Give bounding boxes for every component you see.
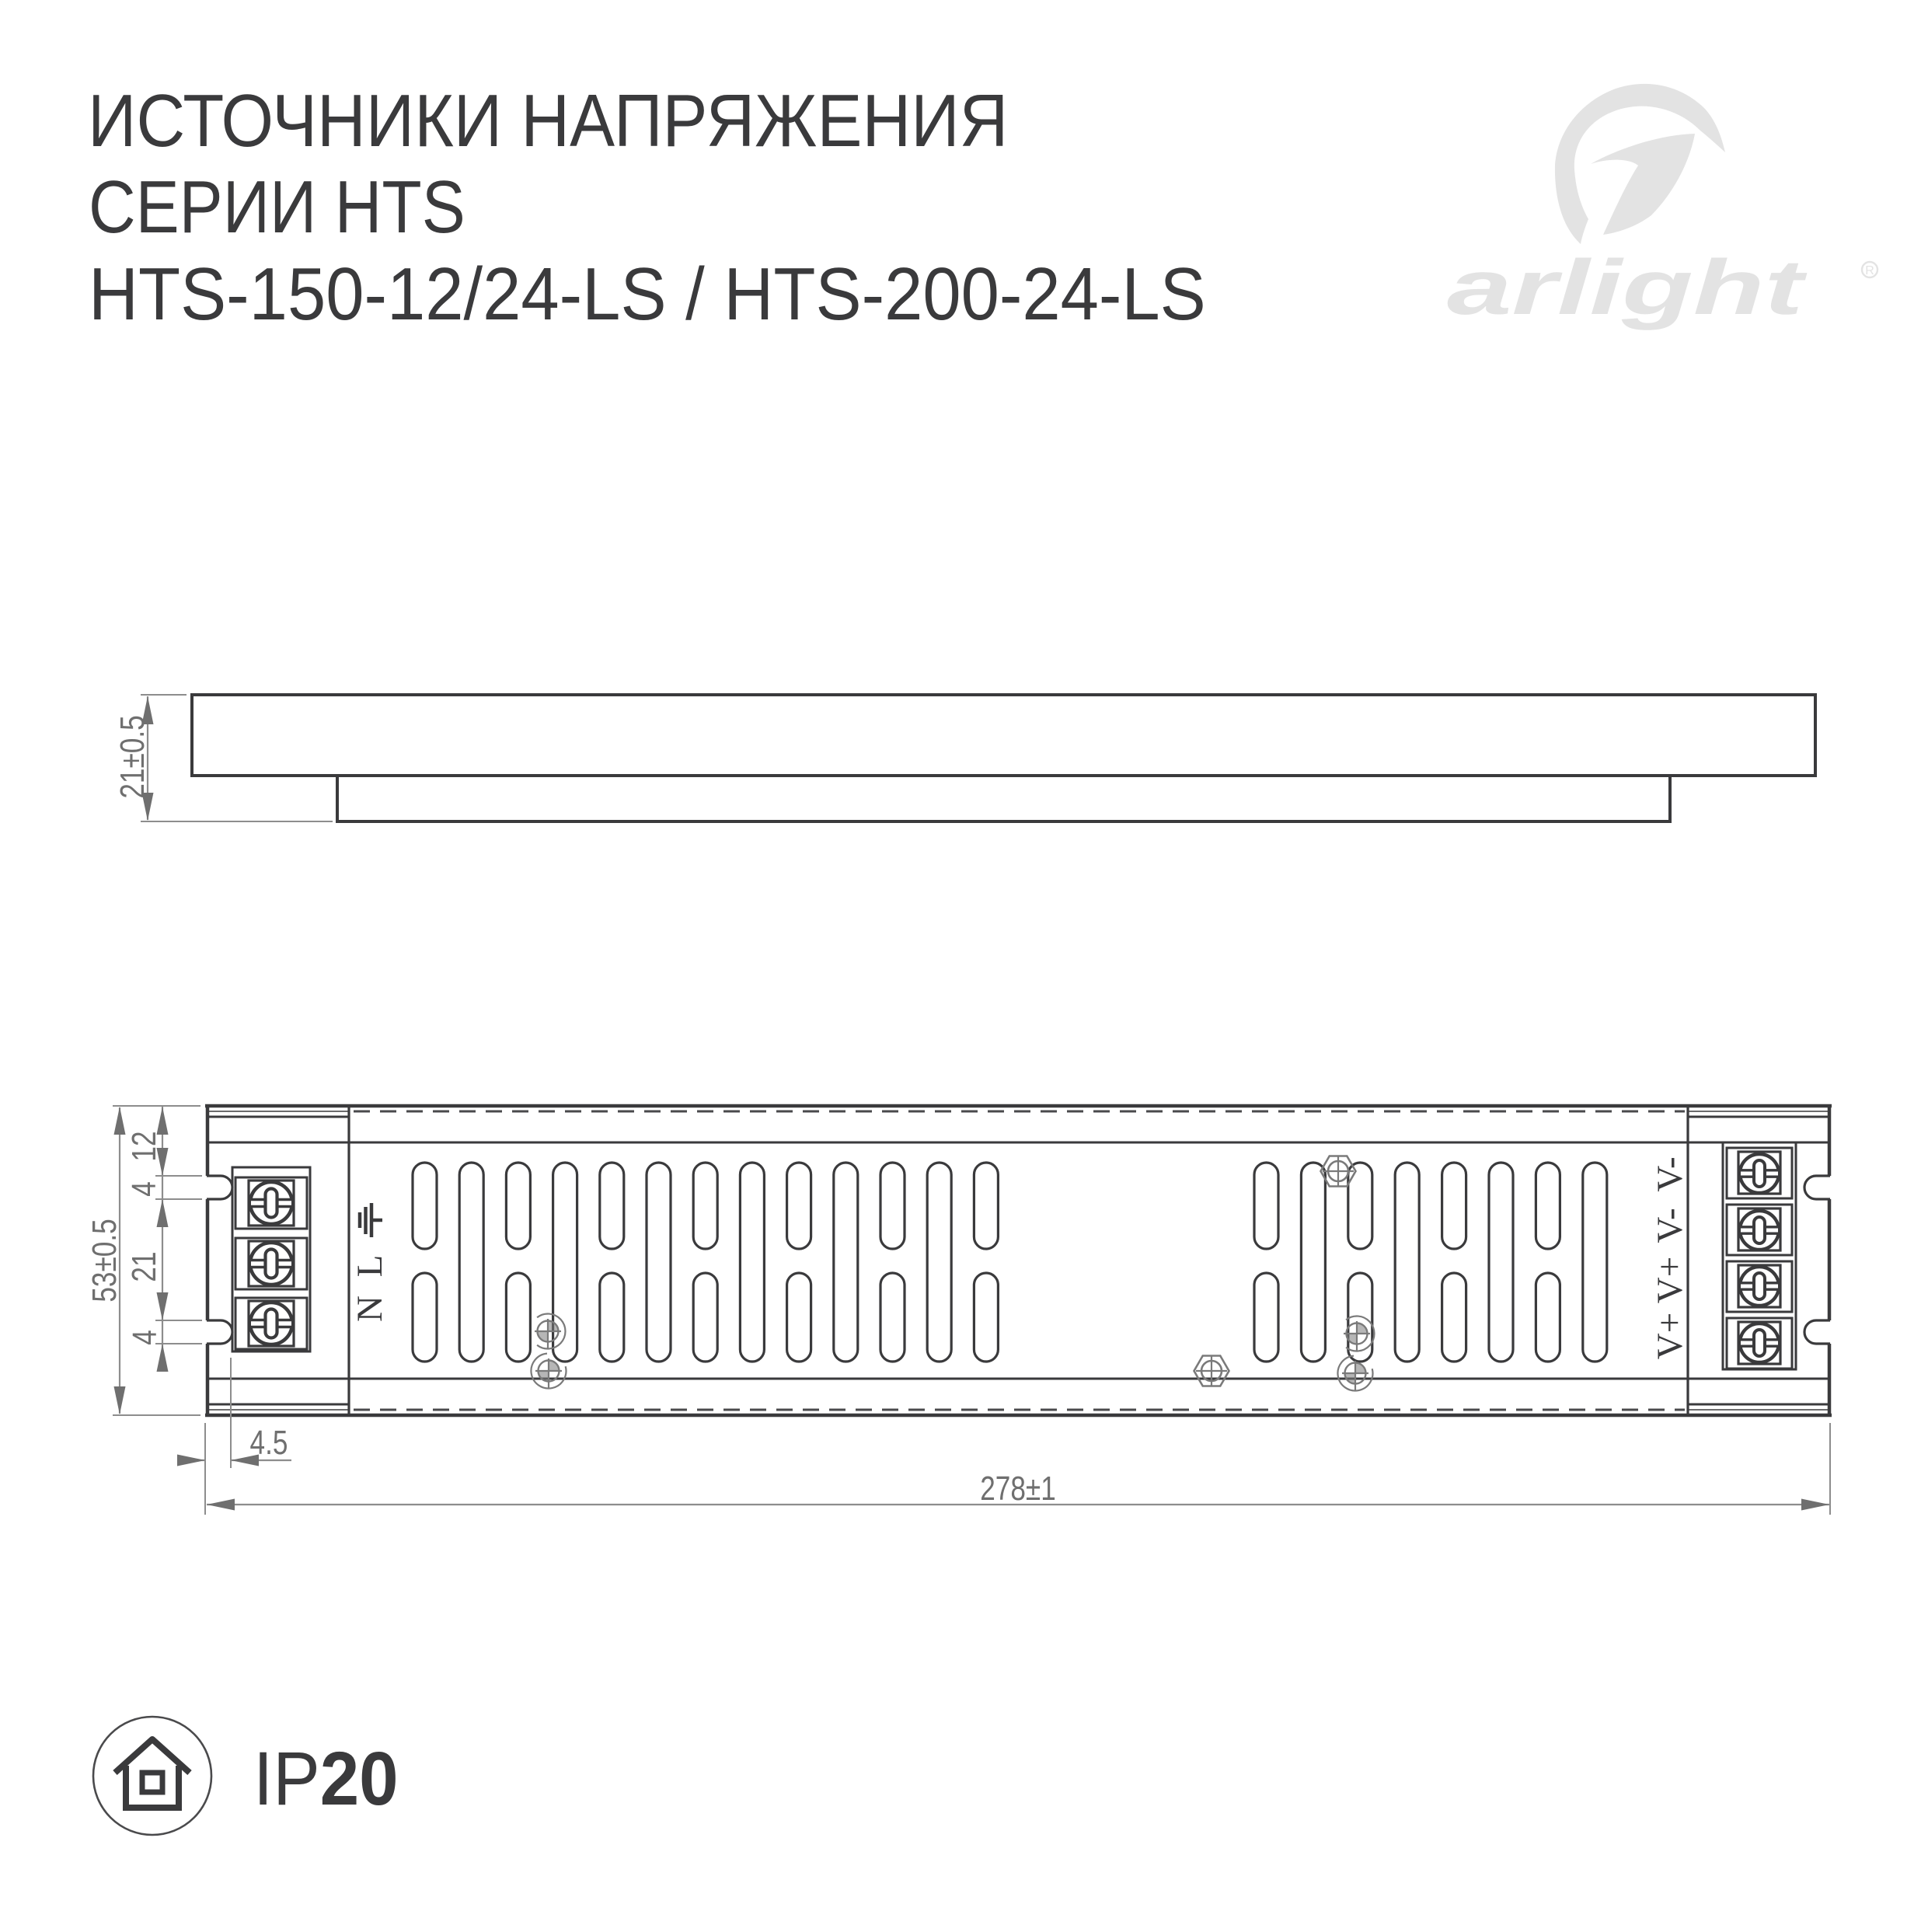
svg-text:278±1: 278±1	[980, 1470, 1056, 1508]
svg-text:IP20: IP20	[253, 1736, 399, 1820]
svg-text:12: 12	[125, 1131, 163, 1161]
svg-text:V+: V+	[1650, 1257, 1690, 1303]
svg-text:V-: V-	[1650, 1156, 1690, 1191]
svg-text:N: N	[350, 1296, 390, 1322]
svg-text:arlight: arlight	[1447, 245, 1808, 331]
svg-text:4: 4	[126, 1330, 164, 1345]
svg-text:R: R	[1865, 264, 1874, 277]
svg-text:V+: V+	[1650, 1313, 1690, 1359]
svg-text:HTS-150-12/24-LS / HTS-200-24-: HTS-150-12/24-LS / HTS-200-24-LS	[89, 252, 1206, 336]
svg-text:21: 21	[125, 1251, 163, 1282]
svg-text:СЕРИИ HTS: СЕРИИ HTS	[89, 166, 465, 249]
svg-text:4: 4	[125, 1181, 163, 1197]
svg-text:4.5: 4.5	[250, 1424, 288, 1462]
svg-text:V-: V-	[1650, 1208, 1690, 1243]
svg-text:53±0.5: 53±0.5	[85, 1219, 124, 1302]
svg-text:21±0.5: 21±0.5	[113, 715, 152, 798]
svg-text:ИСТОЧНИКИ НАПРЯЖЕНИЯ: ИСТОЧНИКИ НАПРЯЖЕНИЯ	[88, 79, 1008, 162]
svg-text:L: L	[350, 1255, 390, 1278]
